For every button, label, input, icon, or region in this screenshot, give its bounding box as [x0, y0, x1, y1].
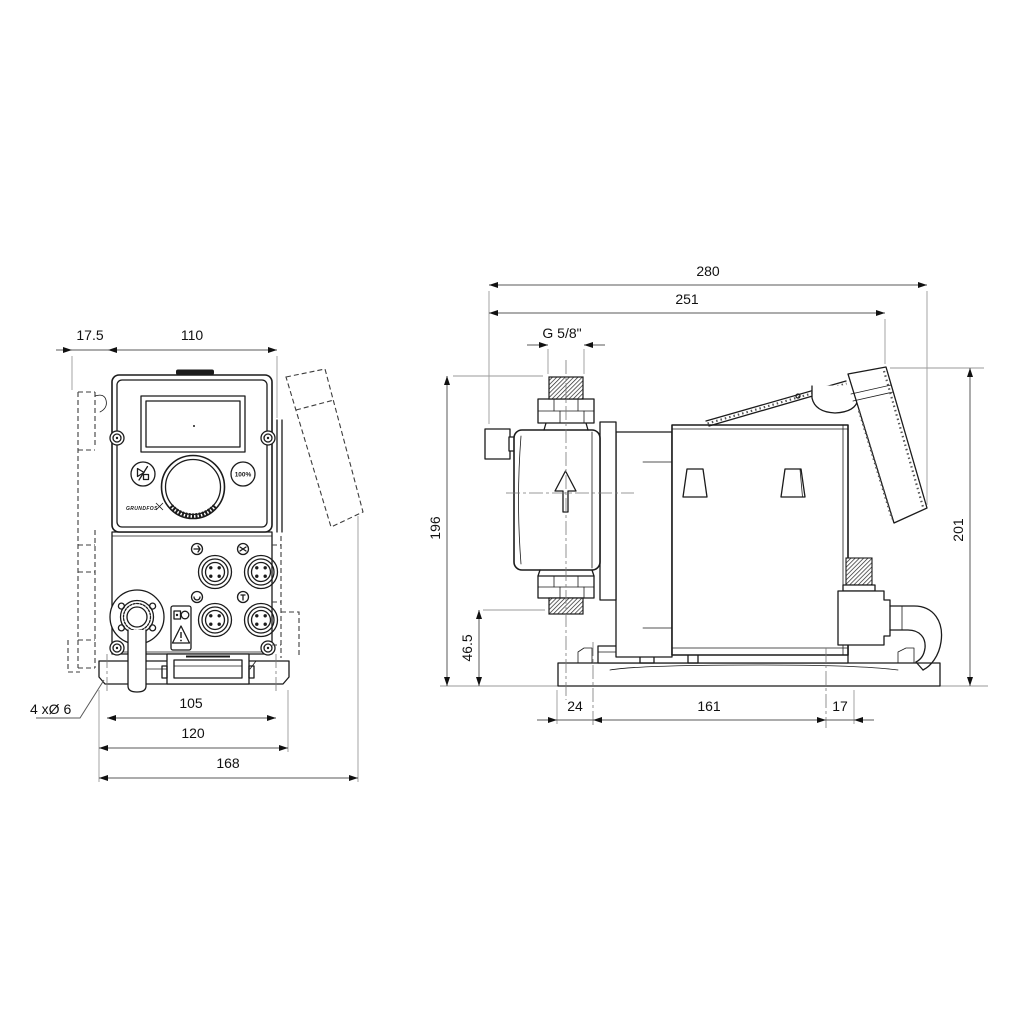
screw — [261, 431, 275, 445]
screw — [261, 641, 275, 655]
dim-text: 110 — [181, 327, 204, 343]
drain-hose — [128, 630, 146, 692]
dim-text: 120 — [181, 725, 205, 741]
display-dot — [193, 425, 195, 427]
display — [141, 396, 245, 452]
head-flange — [600, 422, 616, 600]
dim-text: 251 — [675, 291, 699, 307]
dim-text: 4 xØ 6 — [30, 701, 71, 717]
pump-body-side — [672, 425, 848, 655]
screw — [110, 431, 124, 445]
drawing-canvas: 100% GRUNDFOS — [0, 0, 1024, 1024]
dim-text: 105 — [179, 695, 203, 711]
top-tab — [176, 370, 214, 376]
rail-clamp — [162, 654, 254, 684]
dim-text: 280 — [696, 263, 720, 279]
start-stop-button — [131, 462, 155, 486]
pump-dimension-drawing: 100% GRUNDFOS — [0, 0, 1024, 1024]
dim-text: 17 — [832, 698, 848, 714]
keyhole-slot — [683, 469, 707, 497]
gland-thread — [846, 558, 872, 585]
screw — [110, 641, 124, 655]
wheel-side-profile — [812, 385, 858, 413]
dim-text: 196 — [427, 516, 443, 540]
deaeration-knob — [485, 429, 510, 459]
dim-text: 46.5 — [459, 634, 475, 661]
warning-label — [171, 606, 191, 650]
logo-text: GRUNDFOS — [126, 506, 158, 512]
dim-text: 24 — [567, 698, 583, 714]
dim-text: 168 — [216, 755, 240, 771]
motor-section — [616, 432, 672, 657]
hundred-percent-label: 100% — [235, 472, 252, 479]
head-body — [514, 430, 600, 570]
dim-text: 201 — [950, 518, 966, 542]
hundred-percent-button: 100% — [231, 462, 255, 486]
dim-text: 17.5 — [76, 327, 103, 343]
dim-text: 161 — [697, 698, 721, 714]
dim-text: G 5/8" — [542, 325, 581, 341]
click-wheel — [162, 456, 225, 519]
